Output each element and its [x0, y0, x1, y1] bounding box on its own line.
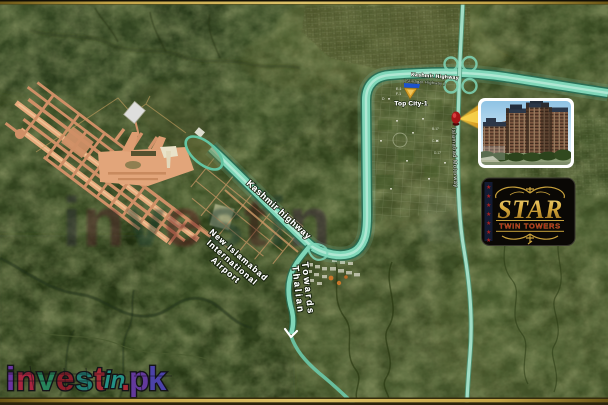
svg-text:C-16: C-16	[432, 139, 439, 143]
svg-text:★: ★	[486, 229, 491, 236]
svg-text:n: n	[82, 183, 125, 261]
svg-text:i: i	[6, 360, 15, 397]
svg-text:n: n	[16, 360, 36, 397]
svg-text:v: v	[126, 183, 165, 261]
svg-text:s: s	[75, 360, 93, 397]
svg-text:E-1: E-1	[396, 87, 402, 91]
svg-text:i: i	[62, 183, 81, 261]
svg-text:k: k	[148, 360, 167, 397]
svg-text:★: ★	[486, 237, 491, 244]
svg-text:★: ★	[486, 202, 491, 209]
svg-text:F-1: F-1	[396, 92, 401, 96]
svg-text:e: e	[164, 183, 203, 261]
svg-text:★: ★	[486, 184, 491, 191]
svg-text:Top City-1: Top City-1	[394, 101, 427, 108]
svg-text:B-17: B-17	[432, 127, 439, 131]
svg-text:★: ★	[486, 193, 491, 200]
svg-text:D-17: D-17	[434, 151, 441, 155]
svg-text:TWIN TOWERS: TWIN TOWERS	[499, 222, 561, 231]
svg-text:p: p	[129, 360, 149, 397]
svg-text:★: ★	[486, 211, 491, 218]
svg-text:v: v	[37, 360, 56, 397]
svg-text:★: ★	[486, 220, 491, 227]
svg-text:STAR: STAR	[497, 195, 563, 224]
